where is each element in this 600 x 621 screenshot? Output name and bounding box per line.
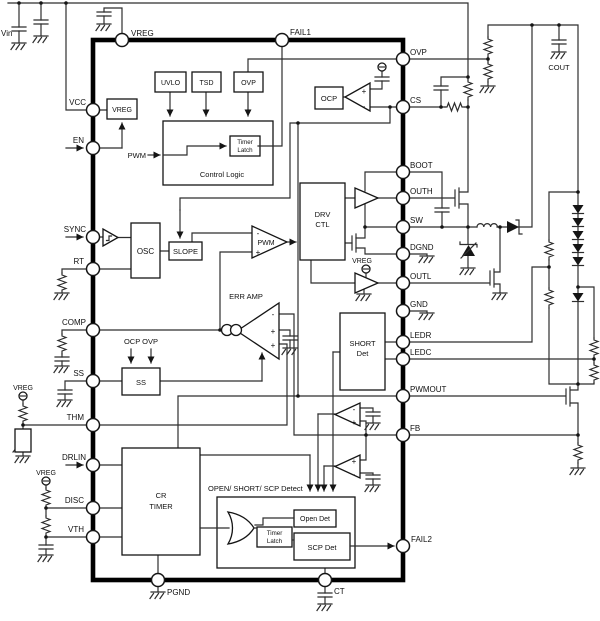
pwm-input-label: PWM <box>128 151 146 160</box>
pin-label-pgnd: PGND <box>167 588 190 597</box>
pin-rt <box>87 263 100 276</box>
pin-label-gnd: GND <box>410 300 428 309</box>
control-logic-label: Control Logic <box>200 170 244 179</box>
scp-det-label: SCP Det <box>307 543 337 552</box>
open-det-label: Open Det <box>300 516 330 523</box>
drv-ctl-label2: CTL <box>315 220 329 229</box>
timer-latch2-label2: Latch <box>267 538 283 545</box>
pin-boot <box>397 166 410 179</box>
timer-latch-label2: Latch <box>237 147 253 154</box>
fbc1-plus: + <box>352 418 357 427</box>
short-det-label2: Det <box>357 349 370 358</box>
pin-label-ct: CT <box>334 587 345 596</box>
cr-timer-label1: CR <box>156 491 167 500</box>
diodes <box>460 205 584 302</box>
detect-title-label: OPEN/ SHORT/ SCP Detect <box>208 484 304 493</box>
pin-vreg <box>116 34 129 47</box>
pin-fail1 <box>276 34 289 47</box>
pin-label-drlin: DRLIN <box>62 453 86 462</box>
pin-label-thm: THM <box>67 413 85 422</box>
ss-label: SS <box>136 378 146 387</box>
pin-label-rt: RT <box>73 257 84 266</box>
short-det-label1: SHORT <box>349 339 376 348</box>
pin-ledc <box>397 353 410 366</box>
thermistor-icon <box>15 429 31 452</box>
pin-fail2 <box>397 540 410 553</box>
pin-pgnd <box>152 574 165 587</box>
pwmc-plus: + <box>256 248 261 257</box>
erramp-plus1: + <box>271 327 276 336</box>
cout-label: COUT <box>548 63 570 72</box>
pin-label-disc: DISC <box>65 496 84 505</box>
vreg-supply-disc-label: VREG <box>36 470 56 477</box>
pin-label-sw: SW <box>410 216 423 225</box>
pin-label-fb: FB <box>410 424 420 433</box>
drv-ctl-label1: DRV <box>315 210 331 219</box>
timer-latch-label1: Timer <box>237 139 253 146</box>
pin-label-boot: BOOT <box>410 161 433 170</box>
ocp-label: OCP <box>321 94 337 103</box>
pin-label-en: EN <box>73 136 84 145</box>
outh-driver-icon <box>355 188 378 208</box>
pin-label-ledc: LEDC <box>410 348 432 357</box>
pwmc-minus: - <box>257 229 260 238</box>
current-source-icon2 <box>231 325 242 336</box>
fbc1-minus: - <box>353 405 356 414</box>
pin-drlin <box>87 459 100 472</box>
pin-ct <box>319 574 332 587</box>
sync-buffer-icon <box>103 229 118 246</box>
rectifier-diode-icon <box>507 221 519 233</box>
tsd-label: TSD <box>200 80 214 87</box>
pin-dgnd <box>397 248 410 261</box>
timer-latch2-label1: Timer <box>267 530 283 537</box>
cr-timer-label2: TIMER <box>149 502 173 511</box>
pwm-comp-label: PWM <box>257 240 274 247</box>
erramp-minus: - <box>272 310 275 319</box>
pin-fb <box>397 429 410 442</box>
pin-outh <box>397 192 410 205</box>
pin-label-vcc: VCC <box>69 98 86 107</box>
pin-label-ovp: OVP <box>410 48 427 57</box>
osc-label: OSC <box>137 247 155 256</box>
pin-label-outh: OUTH <box>410 187 433 196</box>
pin-label-ss: SS <box>73 369 84 378</box>
vreg-supply-outl-label: VREG <box>352 258 372 265</box>
pin-en <box>87 142 100 155</box>
pin-label-vreg: VREG <box>131 29 154 38</box>
ss-inputs-label: OCP OVP <box>124 337 158 346</box>
pin-label-vth: VTH <box>68 525 84 534</box>
err-amp-label: ERR AMP <box>229 292 263 301</box>
pin-label-comp: COMP <box>62 318 86 327</box>
pin-disc <box>87 502 100 515</box>
pin-vcc <box>87 104 100 117</box>
pin-ss <box>87 375 100 388</box>
ocp-plus: + <box>362 87 367 96</box>
internal-fet-icon <box>352 234 356 252</box>
pin-pwmout <box>397 390 410 403</box>
pin-cs <box>397 101 410 114</box>
inductor-icon <box>477 224 497 227</box>
pin-label-fail2: FAIL2 <box>411 535 432 544</box>
fbc2-plus: + <box>352 457 357 466</box>
vin-label: Vin <box>1 29 12 38</box>
slope-label: SLOPE <box>173 247 198 256</box>
ocp-minus: - <box>363 102 366 111</box>
block-diagram: Vin COUT VREG VREG VREG VREG FAIL1 VCC E… <box>0 0 600 621</box>
pin-ovp <box>397 53 410 66</box>
pin-gnd <box>397 305 410 318</box>
pin-thm <box>87 419 100 432</box>
pin-sync <box>87 231 100 244</box>
pin-label-cs: CS <box>410 96 421 105</box>
pin-label-sync: SYNC <box>64 225 86 234</box>
pin-ledr <box>397 336 410 349</box>
vreg-supply-thm-label: VREG <box>13 385 33 392</box>
pin-label-dgnd: DGND <box>410 243 434 252</box>
pin-label-outl: OUTL <box>410 272 432 281</box>
schematic-canvas: Vin COUT VREG VREG VREG VREG FAIL1 VCC E… <box>0 0 600 621</box>
uvlo-label: UVLO <box>161 80 181 87</box>
pin-label-ledr: LEDR <box>410 331 432 340</box>
pin-sw <box>397 221 410 234</box>
pin-outl <box>397 277 410 290</box>
fbc2-minus: - <box>353 470 356 479</box>
vreg-block-label: VREG <box>112 107 132 114</box>
pin-vth <box>87 531 100 544</box>
erramp-plus2: + <box>271 341 276 350</box>
junction-dots <box>17 1 596 539</box>
resistors <box>19 37 598 536</box>
ovp-label: OVP <box>241 80 256 87</box>
pin-comp <box>87 324 100 337</box>
pin-label-fail1: FAIL1 <box>290 28 311 37</box>
pin-label-pwmout: PWMOUT <box>410 385 447 394</box>
